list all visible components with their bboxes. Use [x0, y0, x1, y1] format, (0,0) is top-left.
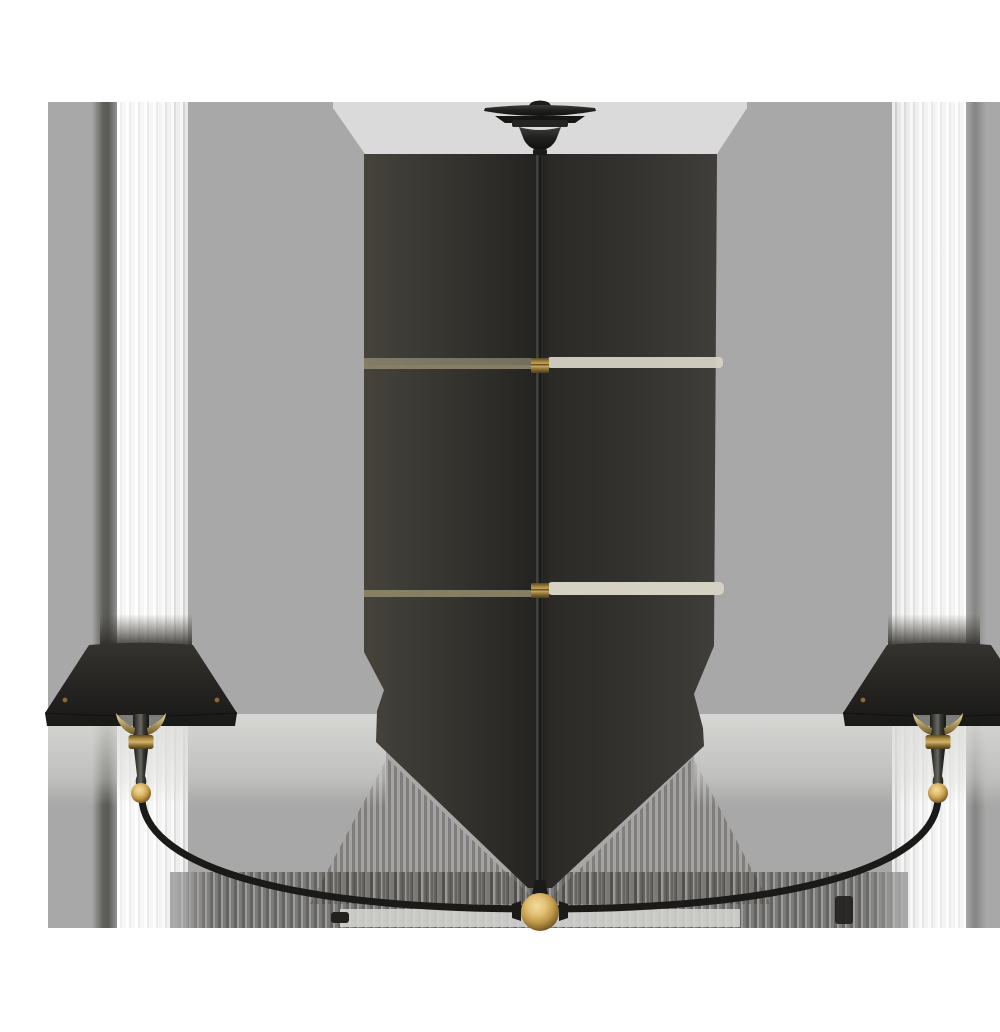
- downrod-segment-2: [537, 373, 544, 583]
- left-shade: [45, 643, 237, 726]
- ball-flange-left: [512, 901, 521, 921]
- product-image: [40, 16, 1000, 1016]
- coupling-band-upper-left: [364, 358, 533, 365]
- canopy-collar: [512, 120, 568, 127]
- downrod-segment-3: [537, 598, 544, 882]
- downrod-segment-1: [537, 155, 544, 359]
- coupling-band-upper-right: [547, 357, 723, 368]
- coupling-ridge-upper: [531, 364, 549, 366]
- right-candle: [931, 749, 945, 784]
- center-ball-finial: [521, 893, 559, 931]
- right-shade-rivet-a: [860, 697, 865, 702]
- ball-flange-right: [559, 901, 568, 921]
- arm-knob-right: [835, 896, 853, 924]
- coupling-ridge-lower: [531, 589, 549, 591]
- shade-shadow-column-left: [100, 614, 192, 645]
- shade-shadow-column-right: [888, 614, 980, 645]
- right-socket: [930, 714, 946, 736]
- left-socket: [133, 714, 149, 736]
- left-candle: [134, 749, 148, 784]
- right-arm-ball: [928, 783, 948, 803]
- canopy-neck: [533, 149, 547, 156]
- left-ring: [129, 735, 154, 749]
- coupling-band-lower-left: [364, 590, 533, 597]
- left-arm-ball: [131, 783, 151, 803]
- chandelier-render: [40, 16, 1000, 1016]
- left-shade-rivet-b: [214, 697, 219, 702]
- coupling-line-upper-left: [364, 365, 533, 369]
- left-shade-rivet-a: [62, 697, 67, 702]
- light-zone-left: [48, 714, 386, 806]
- arm-knob-left: [331, 912, 349, 923]
- coupling-band-lower-right: [547, 582, 724, 595]
- right-ring: [926, 735, 951, 749]
